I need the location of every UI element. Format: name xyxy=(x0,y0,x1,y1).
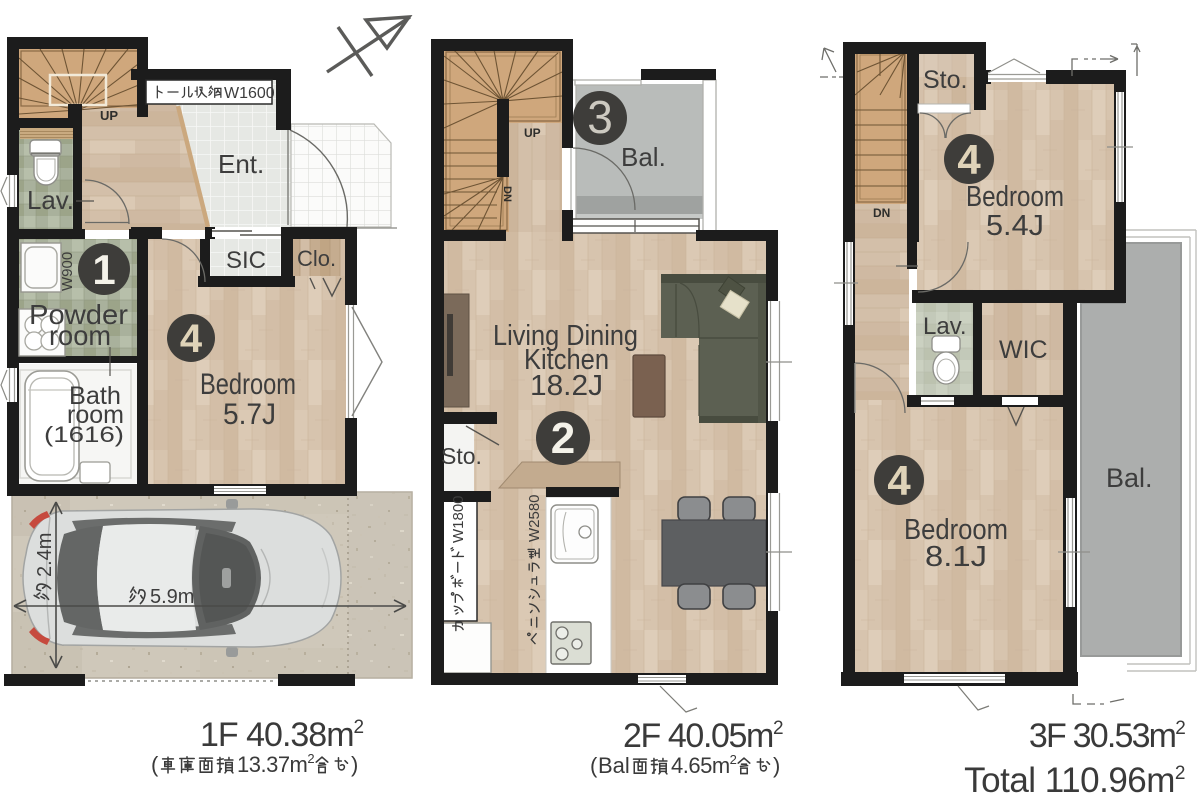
svg-text:8.1J: 8.1J xyxy=(925,541,987,573)
svg-text:Ent.: Ent. xyxy=(218,149,264,179)
svg-text:4: 4 xyxy=(957,136,981,183)
svg-text:1F 40.38m2: 1F 40.38m2 xyxy=(200,716,364,754)
svg-text:Bal.: Bal. xyxy=(621,142,666,172)
svg-text:Bedroom: Bedroom xyxy=(200,368,296,401)
svg-text:(: ( xyxy=(151,752,159,777)
svg-text:UP: UP xyxy=(100,108,118,123)
svg-text:SIC: SIC xyxy=(226,247,266,274)
svg-text:room: room xyxy=(49,320,111,351)
svg-text:2F 40.05m2: 2F 40.05m2 xyxy=(623,717,783,755)
svg-text:DN: DN xyxy=(501,186,513,202)
svg-text:UP: UP xyxy=(524,126,541,140)
svg-text:4: 4 xyxy=(887,457,911,504)
svg-text:5.9m: 5.9m xyxy=(150,586,194,608)
svg-text:): ) xyxy=(773,753,780,778)
svg-text:WIC: WIC xyxy=(999,336,1048,364)
svg-text:13.37m2: 13.37m2 xyxy=(237,751,314,777)
svg-text:Bedroom: Bedroom xyxy=(966,181,1064,213)
svg-text:5.4J: 5.4J xyxy=(986,210,1044,242)
svg-text:2: 2 xyxy=(551,414,575,463)
svg-text:W1600: W1600 xyxy=(224,85,275,102)
svg-text:DN: DN xyxy=(873,206,890,220)
svg-text:Total 110.96m2: Total 110.96m2 xyxy=(964,761,1185,800)
svg-text:W900: W900 xyxy=(59,252,76,291)
svg-text:4.65m2: 4.65m2 xyxy=(671,752,737,778)
svg-text:2.4m: 2.4m xyxy=(34,533,56,577)
svg-text:3F 30.53m2: 3F 30.53m2 xyxy=(1029,717,1185,755)
svg-text:Sto.: Sto. xyxy=(923,66,967,94)
svg-text:Bal: Bal xyxy=(598,753,630,778)
svg-text:Sto.: Sto. xyxy=(441,443,482,469)
svg-text:Lav.: Lav. xyxy=(27,185,74,215)
svg-text:4: 4 xyxy=(180,317,203,361)
svg-text:5.7J: 5.7J xyxy=(223,398,276,431)
svg-text:3: 3 xyxy=(587,91,613,143)
svg-text:(: ( xyxy=(590,753,598,778)
svg-text:18.2J: 18.2J xyxy=(530,370,603,402)
svg-text:1: 1 xyxy=(92,246,115,293)
svg-text:): ) xyxy=(351,752,358,777)
svg-text:Clo.: Clo. xyxy=(297,246,336,271)
svg-text:W2580: W2580 xyxy=(526,494,543,542)
svg-text:Lav.: Lav. xyxy=(923,313,967,340)
svg-text:Bal.: Bal. xyxy=(1106,463,1153,493)
svg-text:(1616): (1616) xyxy=(44,422,124,447)
svg-text:W1800: W1800 xyxy=(450,495,467,543)
